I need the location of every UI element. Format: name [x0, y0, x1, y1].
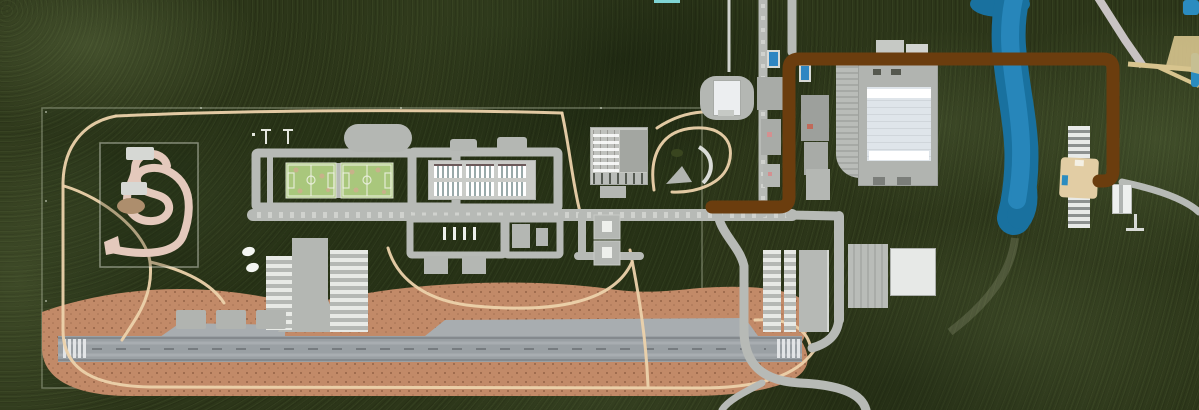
route-layer: [0, 0, 1199, 410]
route-annotation: [712, 59, 1113, 207]
satellite-map[interactable]: [0, 0, 1199, 410]
